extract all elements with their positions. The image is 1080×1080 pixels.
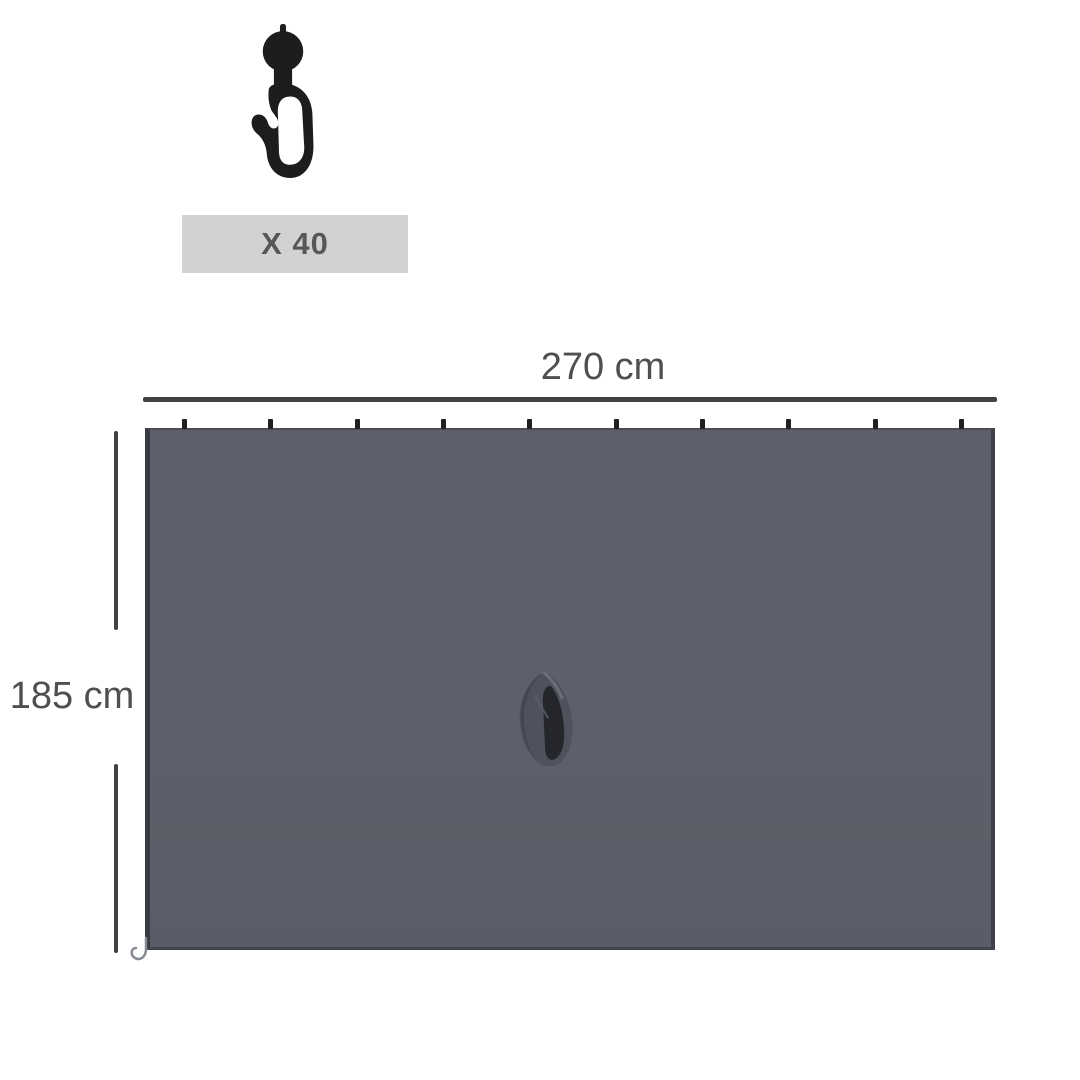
hook-tick [786, 419, 791, 429]
hook-tick [355, 419, 360, 429]
hook-tick [959, 419, 964, 429]
quantity-label: X 40 [261, 226, 329, 262]
hook-tick [873, 419, 878, 429]
height-dimension-label: 185 cm [2, 676, 142, 716]
curtain-hook-icon [250, 24, 316, 184]
height-dimension-line-lower [114, 764, 118, 953]
width-dimension-label: 270 cm [503, 347, 703, 387]
hook-tick [268, 419, 273, 429]
hook-tick [700, 419, 705, 429]
height-dimension-line-upper [114, 431, 118, 630]
hook-tick [527, 419, 532, 429]
width-dimension-line [143, 397, 997, 402]
hook-tick [614, 419, 619, 429]
hook-tick [182, 419, 187, 429]
corner-fold-detail [128, 936, 156, 966]
hook-tick [441, 419, 446, 429]
quantity-banner: X 40 [182, 215, 408, 273]
fabric-tie-pocket-icon [505, 666, 595, 778]
